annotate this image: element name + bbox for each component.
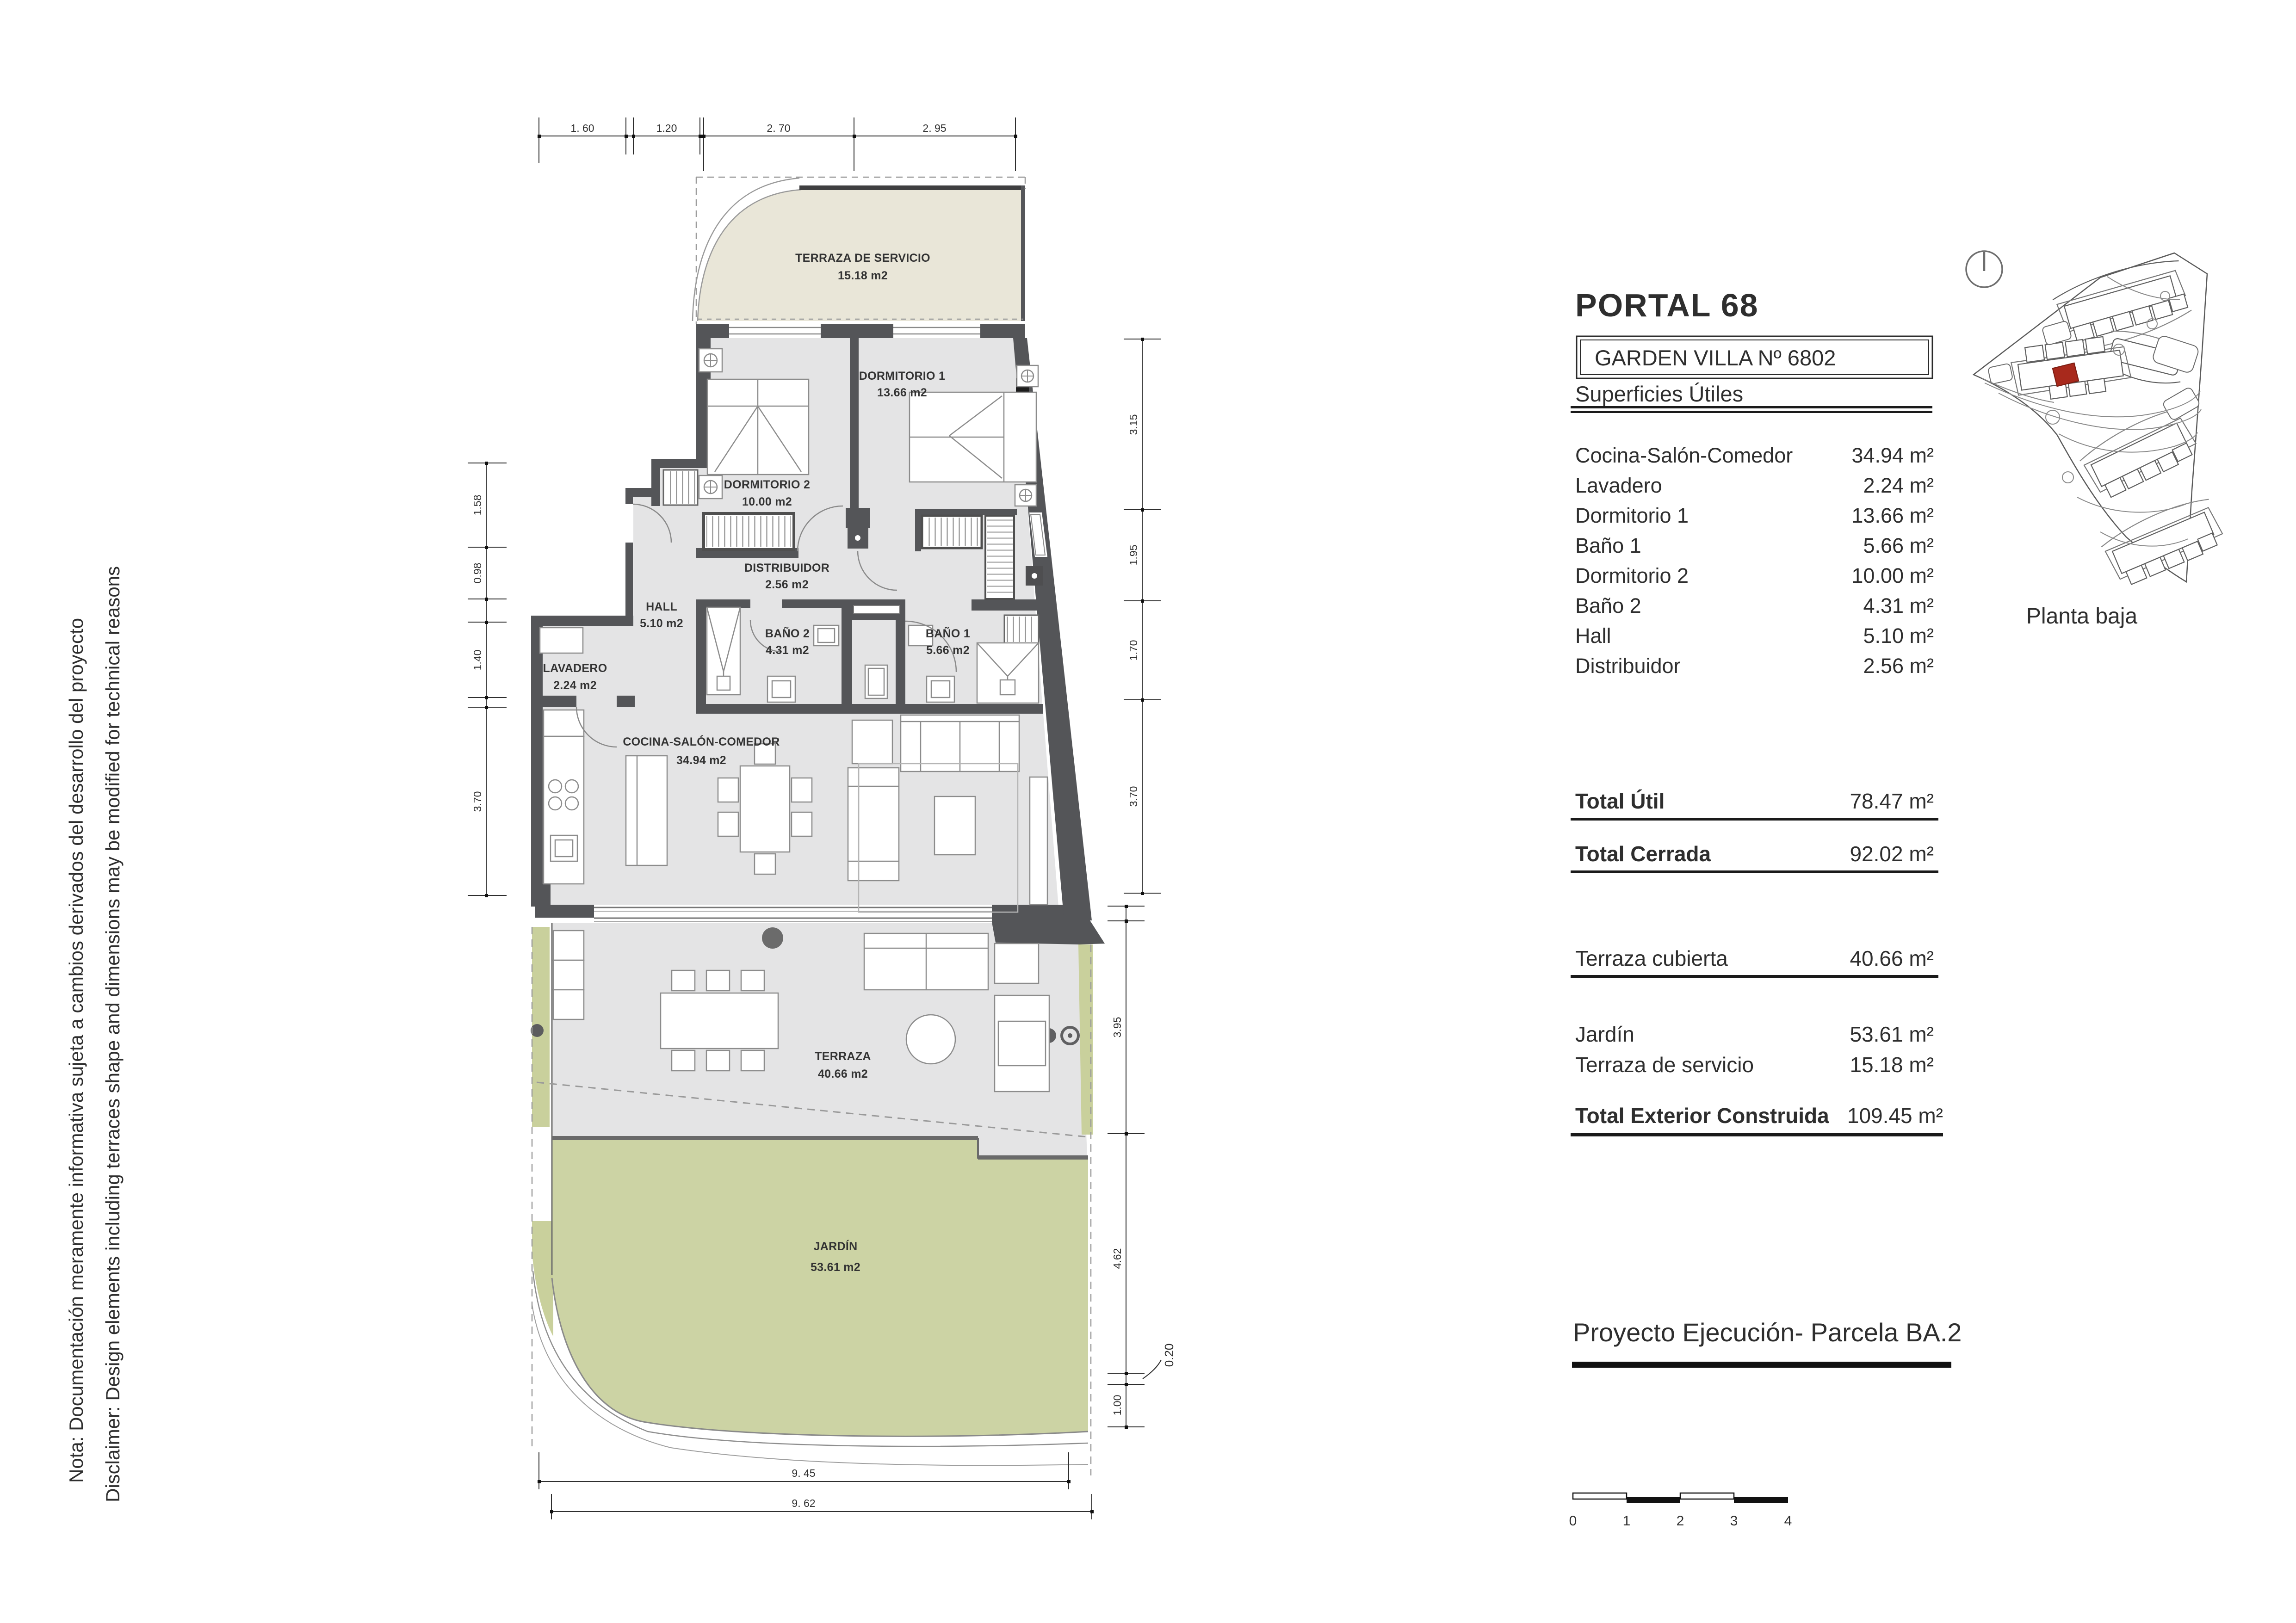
- svg-text:40.66 m²: 40.66 m²: [1850, 946, 1934, 970]
- svg-text:Jardín: Jardín: [1575, 1022, 1634, 1046]
- svg-text:1.58: 1.58: [471, 495, 483, 516]
- svg-text:2.56 m2: 2.56 m2: [765, 578, 809, 591]
- svg-text:1.70: 1.70: [1127, 640, 1139, 661]
- svg-text:53.61 m2: 53.61 m2: [811, 1261, 860, 1274]
- svg-text:15.18 m²: 15.18 m²: [1850, 1053, 1934, 1077]
- svg-text:13.66 m²: 13.66 m²: [1851, 504, 1934, 527]
- svg-text:0.20: 0.20: [1162, 1344, 1176, 1367]
- svg-text:10.00 m²: 10.00 m²: [1851, 564, 1934, 587]
- svg-text:1. 60: 1. 60: [570, 122, 594, 134]
- svg-text:0: 0: [1569, 1513, 1577, 1529]
- svg-text:9. 62: 9. 62: [792, 1497, 815, 1509]
- svg-text:Lavadero: Lavadero: [1575, 474, 1662, 497]
- svg-text:34.94 m2: 34.94 m2: [676, 754, 726, 767]
- svg-text:1.20: 1.20: [656, 122, 677, 134]
- svg-text:Total Útil: Total Útil: [1575, 789, 1665, 813]
- svg-text:1.00: 1.00: [1111, 1395, 1123, 1416]
- svg-text:GARDEN VILLA Nº 6802: GARDEN VILLA Nº 6802: [1595, 346, 1836, 370]
- svg-text:DORMITORIO 2: DORMITORIO 2: [724, 478, 811, 491]
- svg-text:Total Exterior Construida: Total Exterior Construida: [1575, 1104, 1829, 1128]
- svg-text:78.47 m²: 78.47 m²: [1850, 789, 1934, 813]
- svg-text:DORMITORIO 1: DORMITORIO 1: [859, 370, 946, 383]
- svg-text:Baño 2: Baño 2: [1575, 594, 1641, 617]
- svg-text:4.31 m²: 4.31 m²: [1863, 594, 1934, 617]
- svg-text:HALL: HALL: [646, 600, 677, 613]
- svg-text:3.70: 3.70: [471, 791, 483, 812]
- svg-text:Cocina-Salón-Comedor: Cocina-Salón-Comedor: [1575, 444, 1793, 467]
- svg-text:BAÑO 1: BAÑO 1: [926, 626, 970, 640]
- svg-text:1.95: 1.95: [1127, 545, 1139, 566]
- svg-text:Baño 1: Baño 1: [1575, 534, 1641, 557]
- svg-text:3.70: 3.70: [1127, 786, 1139, 807]
- svg-text:Superficies Útiles: Superficies Útiles: [1575, 382, 1743, 406]
- svg-text:13.66 m2: 13.66 m2: [877, 386, 927, 399]
- svg-text:2.24 m2: 2.24 m2: [553, 679, 597, 692]
- svg-text:2. 70: 2. 70: [767, 122, 790, 134]
- svg-text:LAVADERO: LAVADERO: [543, 662, 607, 675]
- svg-text:4.62: 4.62: [1111, 1248, 1123, 1269]
- svg-text:4: 4: [1784, 1513, 1792, 1529]
- svg-text:3.15: 3.15: [1127, 414, 1139, 435]
- svg-text:40.66 m2: 40.66 m2: [818, 1068, 868, 1080]
- svg-text:DISTRIBUIDOR: DISTRIBUIDOR: [744, 562, 829, 574]
- svg-text:JARDÍN: JARDÍN: [814, 1240, 858, 1253]
- svg-text:5.66 m²: 5.66 m²: [1863, 534, 1934, 557]
- svg-text:5.10 m²: 5.10 m²: [1863, 624, 1934, 648]
- svg-text:9. 45: 9. 45: [792, 1467, 815, 1479]
- svg-text:15.18 m2: 15.18 m2: [838, 269, 888, 282]
- svg-text:PORTAL 68: PORTAL 68: [1575, 287, 1759, 323]
- svg-text:Hall: Hall: [1575, 624, 1611, 648]
- svg-text:Nota: Documentación meramente: Nota: Documentación meramente informativ…: [65, 618, 87, 1483]
- svg-text:2: 2: [1677, 1513, 1684, 1529]
- svg-text:53.61 m²: 53.61 m²: [1850, 1022, 1934, 1046]
- svg-text:34.94 m²: 34.94 m²: [1851, 444, 1934, 467]
- svg-text:109.45 m²: 109.45 m²: [1847, 1104, 1943, 1128]
- svg-text:TERRAZA DE SERVICIO: TERRAZA DE SERVICIO: [795, 252, 930, 265]
- svg-text:Dormitorio 1: Dormitorio 1: [1575, 504, 1689, 527]
- svg-text:Planta baja: Planta baja: [2026, 604, 2137, 629]
- svg-text:Terraza de servicio: Terraza de servicio: [1575, 1053, 1754, 1077]
- svg-text:2.56 m²: 2.56 m²: [1863, 654, 1934, 678]
- svg-text:3: 3: [1730, 1513, 1738, 1529]
- svg-text:Total Cerrada: Total Cerrada: [1575, 842, 1711, 866]
- svg-text:TERRAZA: TERRAZA: [815, 1050, 871, 1063]
- svg-text:COCINA-SALÓN-COMEDOR: COCINA-SALÓN-COMEDOR: [623, 734, 780, 748]
- svg-text:Proyecto Ejecución- Parcela BA: Proyecto Ejecución- Parcela BA.2: [1573, 1318, 1962, 1347]
- svg-text:2.24 m²: 2.24 m²: [1863, 474, 1934, 497]
- svg-text:Dormitorio 2: Dormitorio 2: [1575, 564, 1689, 587]
- svg-text:BAÑO 2: BAÑO 2: [765, 626, 810, 640]
- svg-text:1: 1: [1623, 1513, 1631, 1529]
- svg-text:2. 95: 2. 95: [922, 122, 946, 134]
- svg-text:92.02 m²: 92.02 m²: [1850, 842, 1934, 866]
- svg-text:Terraza cubierta: Terraza cubierta: [1575, 946, 1728, 970]
- svg-text:5.10 m2: 5.10 m2: [640, 617, 683, 630]
- svg-text:3.95: 3.95: [1111, 1017, 1123, 1038]
- svg-text:Disclaimer: Design elements in: Disclaimer: Design elements including te…: [102, 566, 124, 1502]
- svg-text:1.40: 1.40: [471, 650, 483, 671]
- svg-text:5.66 m2: 5.66 m2: [926, 644, 970, 657]
- svg-text:4.31 m2: 4.31 m2: [766, 644, 809, 657]
- svg-text:Distribuidor: Distribuidor: [1575, 654, 1681, 678]
- svg-text:10.00 m2: 10.00 m2: [742, 495, 792, 508]
- svg-text:0.98: 0.98: [471, 563, 483, 584]
